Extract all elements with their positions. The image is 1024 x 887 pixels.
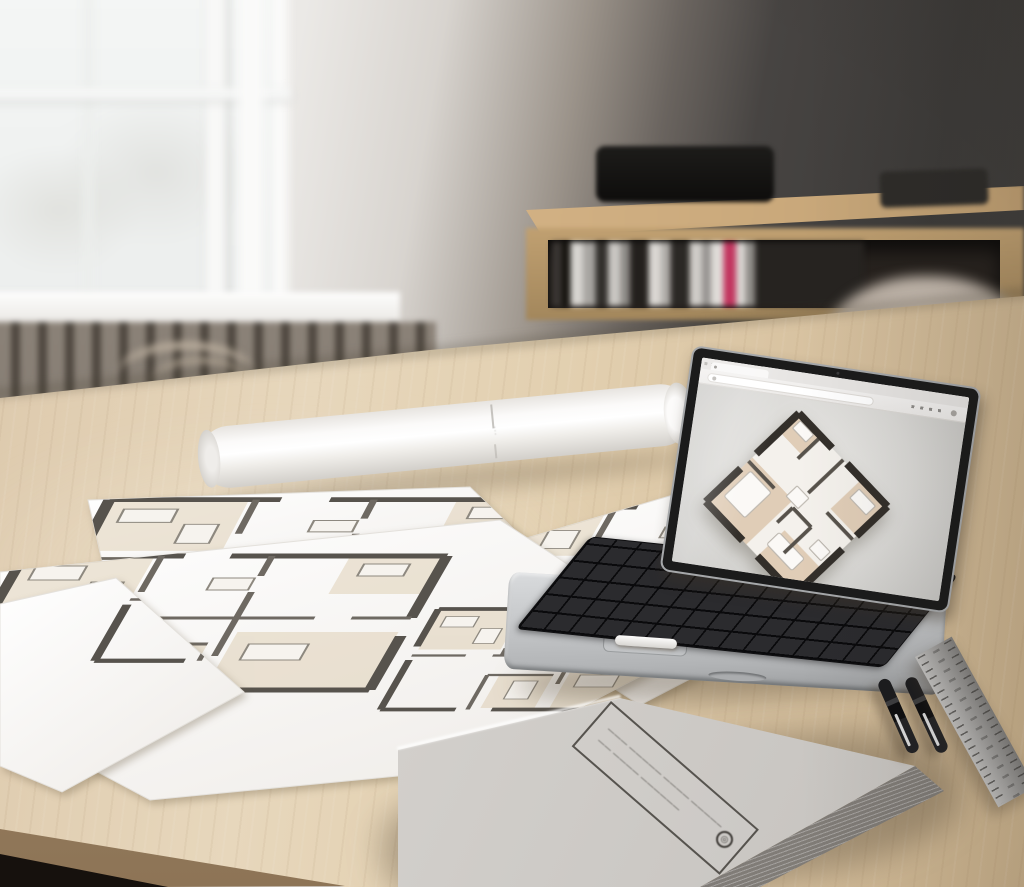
webcam-icon (836, 372, 839, 375)
window-sill (0, 292, 400, 326)
screen-glare (672, 358, 969, 602)
laptop-lid-notch (708, 670, 766, 683)
architecture-workspace-photo: ··· (0, 0, 1024, 887)
printer (596, 146, 774, 202)
shelf-books (552, 242, 864, 306)
roll-seam (490, 404, 494, 428)
window-mullion-thin (84, 0, 93, 310)
floor-plan-sheet-blank-corner (0, 570, 260, 800)
tablet-device (879, 168, 988, 208)
publisher-logo: ◎ (713, 827, 737, 851)
laptop-screen (659, 345, 981, 614)
window-mullion-vertical (206, 0, 226, 314)
laptop-display (672, 358, 969, 602)
roll-seam-lower (494, 444, 497, 458)
roll-mark-text: ··· (491, 426, 499, 437)
window-frame-right (238, 0, 264, 330)
window-pane (0, 0, 272, 298)
